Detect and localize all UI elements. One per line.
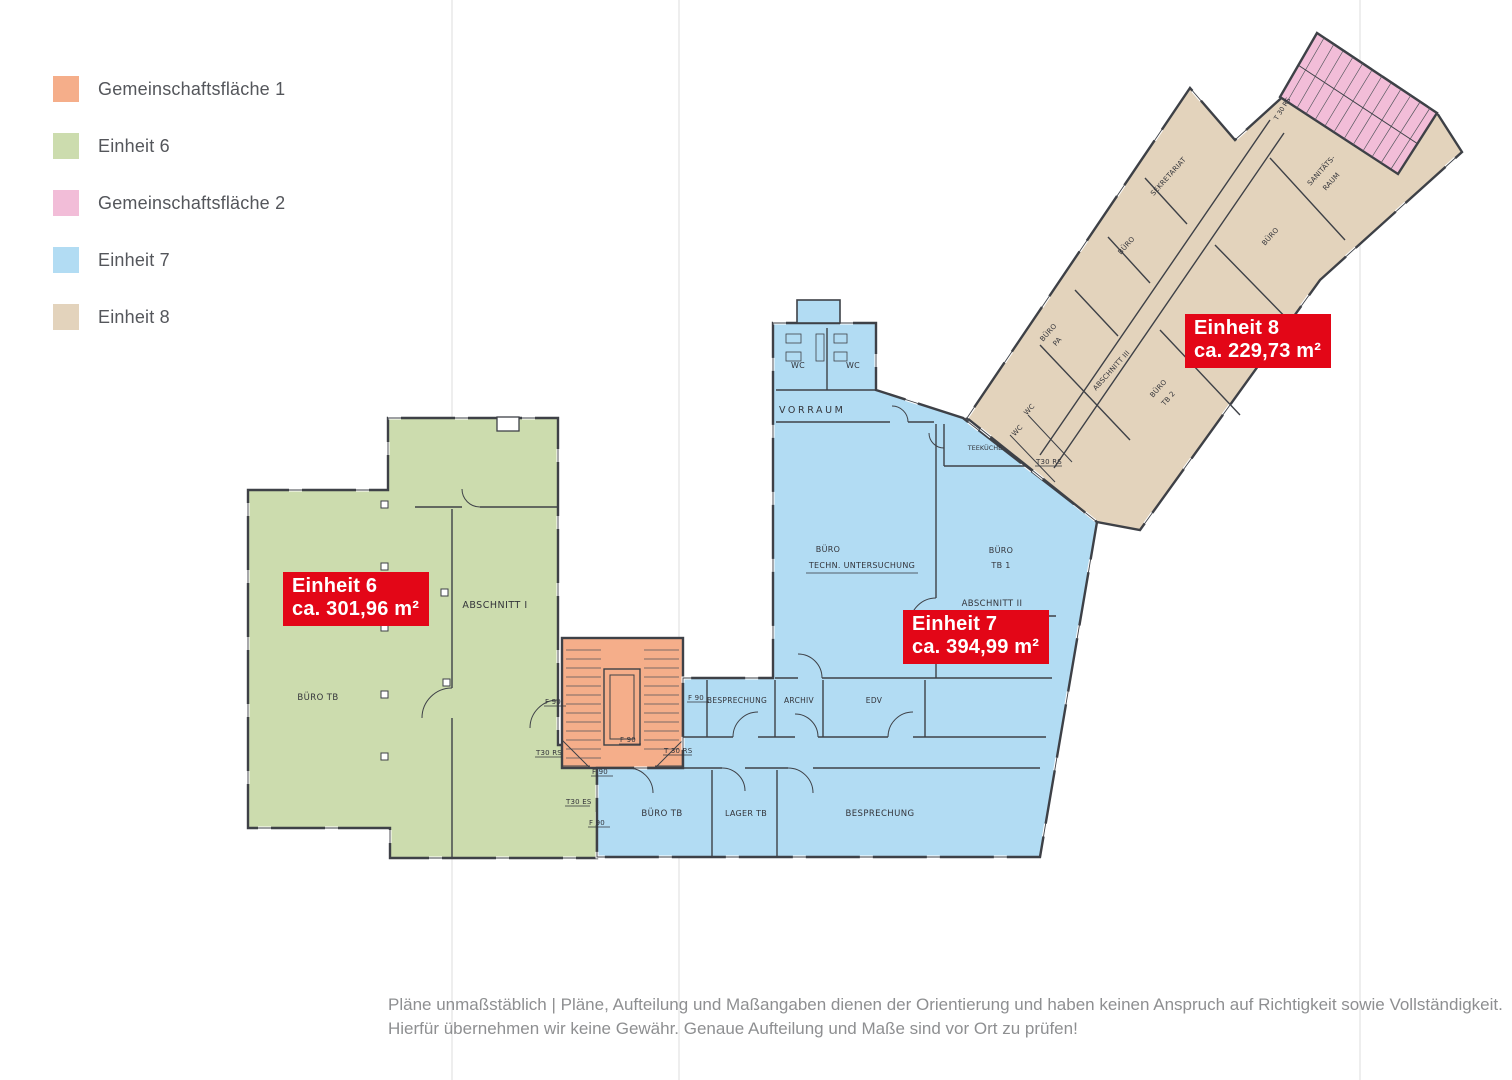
legend-item-unit-6: Einheit 6 xyxy=(53,133,285,159)
unit-7-name: Einheit 7 xyxy=(912,613,1039,636)
fire-label-f90: F 90 xyxy=(545,698,561,706)
wall-notch xyxy=(497,417,519,431)
legend-label: Einheit 8 xyxy=(98,307,170,328)
fire-label-f90: F 90 xyxy=(589,819,605,827)
room-label-techn-untersuchung: TECHN. UNTERSUCHUNG xyxy=(808,561,915,570)
legend-label: Gemeinschaftsfläche 1 xyxy=(98,79,285,100)
legend-swatch-orange xyxy=(53,76,79,102)
legend-swatch-beige xyxy=(53,304,79,330)
room-label-besprechung: BESPRECHUNG xyxy=(707,696,767,705)
unit-6-label: Einheit 6 ca. 301,96 m² xyxy=(283,572,429,626)
legend-swatch-pink xyxy=(53,190,79,216)
room-label-buero-tb: BÜRO TB xyxy=(297,692,338,703)
floor-plan-page: WC WC VORRAUM TEEKÜCHE BÜRO TECHN. UNTER… xyxy=(0,0,1512,1080)
legend-label: Einheit 7 xyxy=(98,250,170,271)
unit-6-name: Einheit 6 xyxy=(292,575,419,598)
room-label-besprechung: BESPRECHUNG xyxy=(846,809,915,819)
disclaimer: Pläne unmaßstäblich | Pläne, Aufteilung … xyxy=(388,993,1503,1041)
unit-8-size: ca. 229,73 m² xyxy=(1194,340,1321,363)
room-label-edv: EDV xyxy=(866,696,883,705)
unit-6-size: ca. 301,96 m² xyxy=(292,598,419,621)
legend-label: Einheit 6 xyxy=(98,136,170,157)
section-label-2: ABSCHNITT II xyxy=(962,599,1023,609)
unit-7-size: ca. 394,99 m² xyxy=(912,636,1039,659)
legend-swatch-blue xyxy=(53,247,79,273)
room-label-teekueche: TEEKÜCHE xyxy=(967,443,1003,452)
roof-stub xyxy=(797,300,840,323)
fire-label-f90: F 90 xyxy=(592,768,608,776)
unit-7-label: Einheit 7 ca. 394,99 m² xyxy=(903,610,1049,664)
room-label-wc: WC xyxy=(846,361,860,370)
room-label-buero: BÜRO xyxy=(816,544,840,554)
unit-8-label: Einheit 8 ca. 229,73 m² xyxy=(1185,314,1331,368)
fire-label-f90: F 90 xyxy=(688,694,704,702)
room-label-wc: WC xyxy=(791,361,805,370)
legend-swatch-green xyxy=(53,133,79,159)
legend-label: Gemeinschaftsfläche 2 xyxy=(98,193,285,214)
legend: Gemeinschaftsfläche 1 Einheit 6 Gemeinsc… xyxy=(53,76,285,361)
room-label-tb1: TB 1 xyxy=(990,561,1010,570)
legend-item-unit-8: Einheit 8 xyxy=(53,304,285,330)
room-label-buero: BÜRO xyxy=(989,545,1013,555)
fire-label-t30: T30 ES xyxy=(565,798,592,806)
unit-6-area xyxy=(248,417,597,858)
unit-6-fill xyxy=(248,418,597,858)
room-label-vorraum: VORRAUM xyxy=(779,405,845,416)
fire-label-t30: T30 RS xyxy=(1035,458,1062,466)
legend-item-unit-7: Einheit 7 xyxy=(53,247,285,273)
disclaimer-line-1: Pläne unmaßstäblich | Pläne, Aufteilung … xyxy=(388,993,1503,1017)
fire-label-t30: T 30 RS xyxy=(663,747,693,755)
room-label-lager-tb: LAGER TB xyxy=(725,809,767,818)
fire-label-t30: T30 RS xyxy=(535,749,562,757)
unit-8-name: Einheit 8 xyxy=(1194,317,1321,340)
section-label-1: ABSCHNITT I xyxy=(462,600,527,611)
room-label-archiv: ARCHIV xyxy=(784,696,815,705)
legend-item-common-area-1: Gemeinschaftsfläche 1 xyxy=(53,76,285,102)
legend-item-common-area-2: Gemeinschaftsfläche 2 xyxy=(53,190,285,216)
room-label-buero-tb: BÜRO TB xyxy=(641,808,682,819)
fire-label-f90: F 90 xyxy=(620,736,636,744)
disclaimer-line-2: Hierfür übernehmen wir keine Gewähr. Gen… xyxy=(388,1017,1503,1041)
